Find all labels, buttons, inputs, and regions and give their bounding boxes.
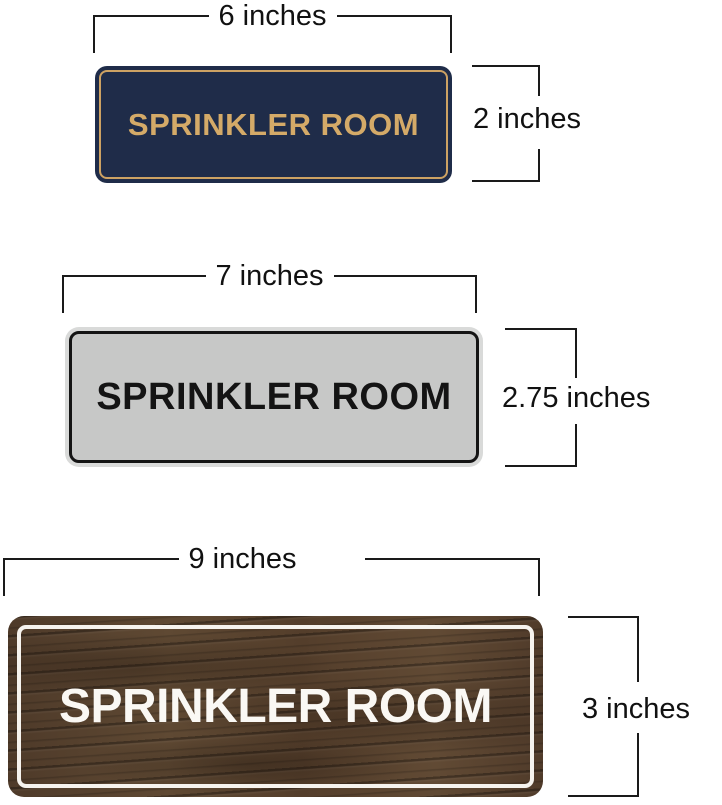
dimension-line (575, 424, 577, 467)
dimension-cap (472, 180, 540, 182)
dimension-line (538, 65, 540, 96)
dimension-line (637, 616, 639, 682)
dimension-tick (93, 15, 95, 53)
dimension-line (637, 733, 639, 797)
dimension-cap (505, 465, 577, 467)
dimension-label: 6 inches (209, 1, 337, 31)
width-dimension-sign2: 7 inches (62, 261, 477, 291)
dimension-tick (3, 558, 5, 596)
product-size-diagram: 6 inches SPRINKLER ROOM 2 inches 7 inche… (0, 0, 722, 805)
dimension-label: 7 inches (206, 261, 334, 291)
dimension-line (337, 15, 453, 17)
height-dimension-sign3: 3 inches (568, 616, 639, 797)
dimension-label: 9 inches (179, 544, 307, 574)
sign-text: SPRINKLER ROOM (128, 107, 419, 143)
dimension-line (334, 275, 478, 277)
dimension-line (93, 15, 209, 17)
dimension-cap (472, 65, 540, 67)
dimension-cap (505, 328, 577, 330)
dimension-label: 3 inches (582, 694, 690, 724)
sign-text: SPRINKLER ROOM (59, 679, 492, 734)
dimension-cap (568, 795, 639, 797)
dimension-line (538, 149, 540, 182)
dimension-line (3, 558, 179, 560)
dimension-line (365, 558, 541, 560)
width-dimension-sign3: 9 inches (3, 544, 540, 574)
sign-navy-gold: SPRINKLER ROOM (95, 66, 452, 183)
dimension-label: 2 inches (473, 104, 581, 134)
dimension-tick (475, 275, 477, 313)
dimension-line (62, 275, 206, 277)
height-dimension-sign2: 2.75 inches (505, 328, 577, 467)
sign-text: SPRINKLER ROOM (96, 376, 451, 419)
sign-silver-black: SPRINKLER ROOM (65, 327, 483, 467)
dimension-tick (62, 275, 64, 313)
dimension-line (575, 328, 577, 378)
dimension-tick (450, 15, 452, 53)
width-dimension-sign1: 6 inches (93, 1, 452, 31)
dimension-cap (568, 616, 639, 618)
dimension-tick (538, 558, 540, 596)
dimension-label: 2.75 inches (502, 383, 650, 413)
height-dimension-sign1: 2 inches (472, 65, 540, 182)
sign-walnut-wood: SPRINKLER ROOM (8, 616, 543, 797)
